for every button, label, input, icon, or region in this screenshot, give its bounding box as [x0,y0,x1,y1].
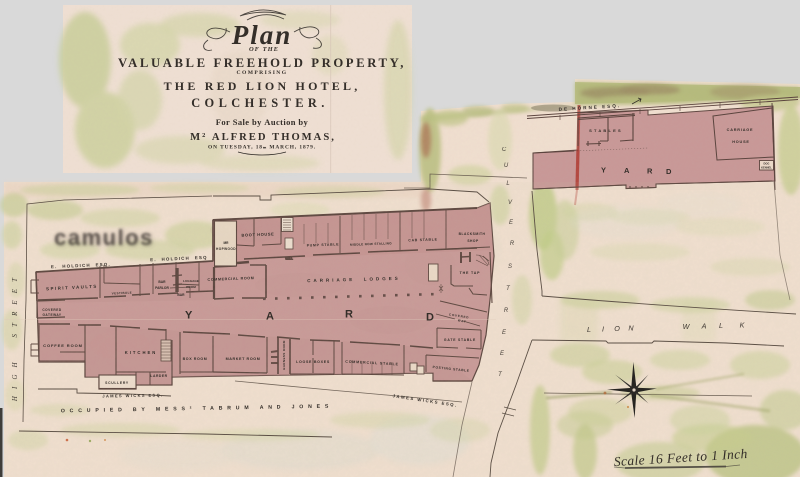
svg-text:A: A [624,166,630,175]
svg-text:M² ALFRED THOMAS,: M² ALFRED THOMAS, [190,132,336,143]
svg-text:OF THE: OF THE [249,46,279,53]
svg-text:W: W [683,322,691,331]
svg-text:ON TUESDAY, 18ₘ MARCH, 1879.: ON TUESDAY, 18ₘ MARCH, 1879. [208,145,316,151]
svg-text:For Sale by Auction by: For Sale by Auction by [216,117,309,127]
svg-text:HOUSE: HOUSE [732,140,750,144]
svg-text:KENNEL: KENNEL [761,166,772,170]
svg-text:THE RED LION HOTEL,: THE RED LION HOTEL, [164,79,361,93]
svg-text:STABLES: STABLES [589,128,623,133]
svg-text:R: R [345,309,353,321]
svg-text:LARDER: LARDER [150,374,167,378]
svg-text:GATE STABLE: GATE STABLE [444,338,476,342]
svg-text:ROOM: ROOM [186,285,196,289]
svg-text:HARNESS ROOM: HARNESS ROOM [282,340,286,370]
svg-text:A: A [266,311,274,323]
svg-text:U: U [504,163,509,169]
svg-text:JAMES WICKS ESQ.: JAMES WICKS ESQ. [102,392,163,398]
svg-text:VALUABLE FREEHOLD PROPERTY,: VALUABLE FREEHOLD PROPERTY, [118,56,406,70]
svg-text:LOOSE BOXES: LOOSE BOXES [296,360,330,364]
svg-text:D: D [666,167,672,176]
svg-text:L: L [506,181,509,187]
svg-text:L: L [587,325,591,334]
svg-text:A: A [701,322,707,331]
svg-text:S: S [508,264,512,270]
svg-text:CARRIAGE: CARRIAGE [727,128,754,132]
svg-text:Y: Y [185,310,193,322]
svg-text:KITCHEN: KITCHEN [125,350,158,355]
svg-text:HOPWOOD: HOPWOOD [216,247,236,251]
svg-text:D: D [426,312,434,324]
svg-text:C: C [502,147,507,153]
svg-text:COVERED: COVERED [42,308,61,312]
svg-text:R: R [504,308,509,314]
svg-text:MARKET ROOM: MARKET ROOM [226,357,261,361]
svg-text:L: L [719,321,723,330]
svg-text:Y: Y [601,166,606,175]
svg-text:I: I [602,325,604,334]
svg-text:THE TAP: THE TAP [460,271,481,275]
svg-text:LUGGAGE: LUGGAGE [183,279,199,283]
svg-text:PARLOR: PARLOR [155,286,169,290]
svg-text:R: R [510,241,515,247]
svg-text:COMPRISING: COMPRISING [237,70,288,76]
svg-text:O: O [614,324,620,333]
svg-text:R: R [647,167,653,176]
svg-text:MR: MR [224,241,230,245]
svg-text:COFFEE ROOM: COFFEE ROOM [43,343,83,348]
svg-text:BLACKSMITH: BLACKSMITH [459,232,486,236]
svg-text:BAR: BAR [177,293,185,297]
svg-text:DOG: DOG [764,162,770,166]
svg-text:SCULLERY: SCULLERY [105,381,129,385]
svg-text:HIGH STREET: HIGH STREET [12,271,19,402]
svg-text:GATEWAY: GATEWAY [42,313,61,317]
svg-text:COLCHESTER.: COLCHESTER. [191,96,329,110]
svg-text:SHOP: SHOP [467,239,479,243]
svg-text:camulos: camulos [55,226,155,251]
svg-text:BOX ROOM: BOX ROOM [183,357,208,361]
svg-text:BAR: BAR [158,280,166,284]
svg-text:N: N [628,324,634,333]
